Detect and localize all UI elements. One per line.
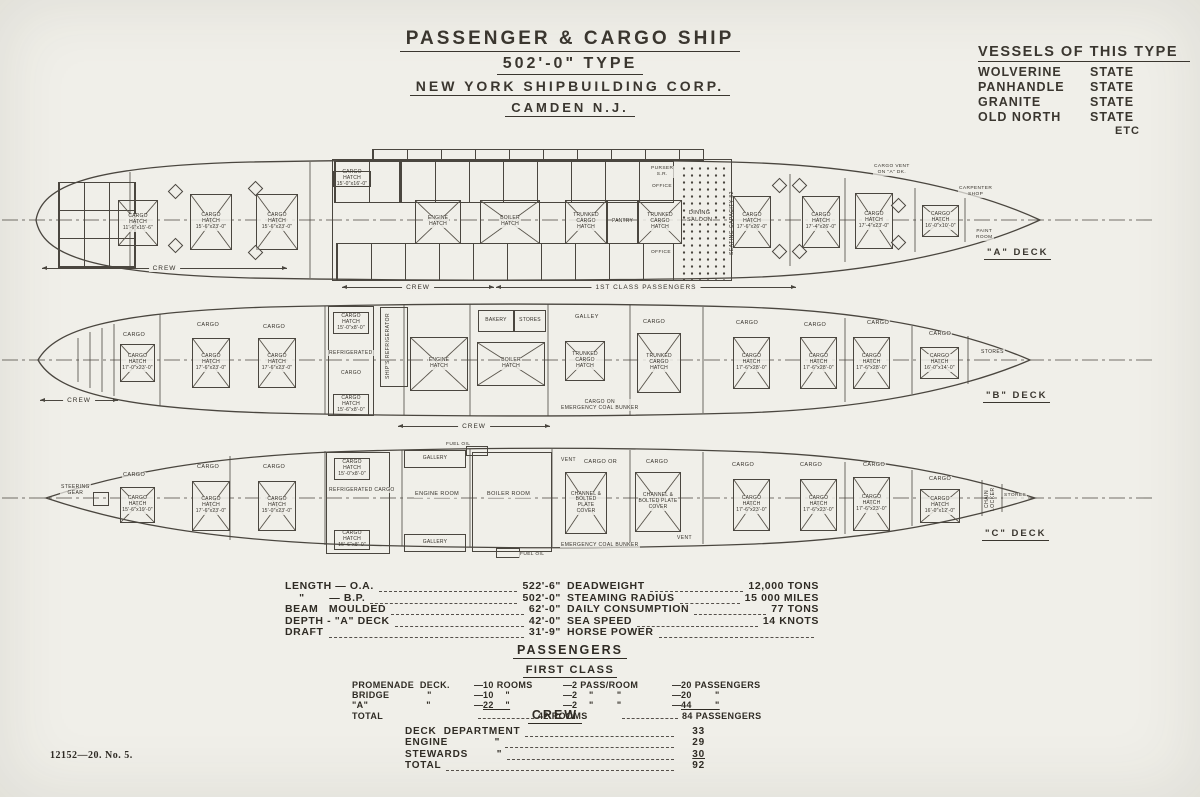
- hatch-label: CARGO HATCH 11'-6"x15'-6": [119, 214, 157, 231]
- spec-value: 42'-0": [529, 615, 561, 627]
- crew-leader: [525, 728, 674, 737]
- cargo-hatch: CARGO HATCH 17'-6"x23'-0": [258, 338, 296, 388]
- hatch-label: CARGO HATCH 17'-4"x26'-0": [803, 213, 839, 230]
- compartment-label: CARGO: [799, 462, 823, 469]
- cargo-hatch: ENGINE HATCH: [410, 337, 468, 391]
- hatch-label: CARGO HATCH 17'-6"x23'-0": [854, 495, 889, 512]
- cargo-hatch: CARGO HATCH 15'-6"x19'-0": [120, 487, 155, 523]
- dimension-line: CREW: [40, 400, 118, 401]
- compartment-label: CARGO: [196, 464, 220, 471]
- hatch-label: CARGO HATCH 16'-0"x12'-0": [921, 497, 959, 514]
- hatch-label: TRUNKED CARGO HATCH: [566, 213, 606, 230]
- compartment-room: STORES: [514, 310, 546, 332]
- dimension-line: CREW: [42, 268, 287, 269]
- passenger-row: PROMENADE DECK.—10 ROOMS—2 PASS/ROOM—20 …: [352, 680, 788, 690]
- cargo-hatch: TRUNKED CARGO HATCH: [565, 200, 607, 244]
- cargo-hatch: CARGO HATCH 17'-6"x23'-0": [192, 338, 230, 388]
- compartment-label: CARPENTER SHOP: [958, 186, 993, 198]
- hatch-label: CARGO HATCH 17'-6"x23'-0": [801, 496, 836, 513]
- hatch-label: TRUNKED CARGO HATCH: [638, 354, 680, 371]
- first-class-subtitle: FIRST CLASS: [523, 664, 618, 678]
- crew-rows: DECK DEPARTMENT33ENGINE "29STEWARDS "30T…: [405, 725, 705, 771]
- compartment-label: VENT: [676, 535, 693, 541]
- compartment-label: REFRIGERATED: [328, 350, 374, 356]
- deck-name-label: "A" DECK: [984, 247, 1051, 260]
- cargo-hatch: BOILER HATCH: [480, 200, 540, 244]
- compartment-label: CARGO: [928, 331, 952, 338]
- compartment-room: [93, 492, 109, 506]
- cargo-hatch: TRUNKED CARGO HATCH: [565, 341, 605, 381]
- spec-label: LENGTH — O.A.: [285, 580, 374, 592]
- cargo-hatch: CARGO HATCH 16'-0"x12'-0": [920, 489, 960, 523]
- compartment-label: BOILER ROOM: [486, 491, 531, 498]
- hatch-label: CARGO HATCH 17'-6"x23'-0": [259, 354, 295, 371]
- spec-value: 12,000 TONS: [748, 580, 819, 592]
- crew-row: ENGINE "29: [405, 737, 705, 749]
- crew-value: 29: [679, 737, 705, 748]
- compartment-label: CARGO VENT ON "A" DK.: [873, 164, 911, 176]
- hatch-label: ENGINE HATCH: [428, 358, 450, 370]
- spec-label: SEA SPEED: [567, 615, 632, 627]
- vertical-label: CHAIN LOCKER: [984, 478, 1000, 520]
- compartment-label: CARGO: [803, 322, 827, 329]
- cargo-hatch: CARGO HATCH 17'-6"x23'-0": [733, 479, 770, 531]
- room-label: GALLERY: [422, 540, 448, 546]
- passenger-deck: BRIDGE ": [352, 690, 474, 700]
- crew-leader: [505, 739, 674, 748]
- dimension-label: CREW: [402, 284, 434, 291]
- compartment-label: CARGO: [645, 459, 669, 466]
- cargo-hatch: BOILER HATCH: [477, 342, 545, 386]
- hatch-label: CARGO HATCH 17'-4"x23'-0": [856, 212, 892, 229]
- hatch-label: CARGO HATCH 17'-6"x26'-0": [734, 213, 770, 230]
- compartment-label: OFFICE: [650, 250, 672, 256]
- compartment-label: CARGO: [196, 322, 220, 329]
- hatch-label: CHANNEL & BOLTED PLATE COVER: [638, 493, 679, 510]
- compartment-room: CARGO HATCH 15'-0"x8'-0": [333, 312, 369, 334]
- spec-value: 31'-9": [529, 626, 561, 638]
- cargo-hatch: CARGO HATCH 16'-0"x14'-0": [920, 347, 959, 379]
- compartment-label: GALLEY: [574, 314, 600, 321]
- cargo-hatch: CARGO HATCH 15'-0"x23'-0": [258, 481, 296, 531]
- hatch-label: BOILER HATCH: [500, 358, 522, 370]
- spec-leader: [694, 606, 766, 615]
- spec-label: DRAFT: [285, 626, 324, 638]
- spec-row: DEADWEIGHT12,000 TONS: [567, 581, 819, 592]
- compartment-label: CARGO: [642, 319, 666, 326]
- compartment-room: CARGO HATCH 15'-0"x16'-0": [333, 171, 371, 187]
- compartment-label: CARGO: [866, 320, 890, 327]
- cargo-hatch: TRUNKED CARGO HATCH: [638, 200, 682, 244]
- room-label: CARGO HATCH 15'-0"x16'-0": [334, 170, 370, 187]
- compartment-label: PURSER S.R.: [650, 166, 674, 178]
- compartment-label: CARGO: [122, 332, 146, 339]
- crew-row: STEWARDS "30: [405, 748, 705, 760]
- dimension-label: CREW: [458, 423, 490, 430]
- room-label: CARGO HATCH 15'-6"x8'-0": [335, 531, 369, 548]
- passenger-rooms: 10 ROOMS: [483, 680, 563, 690]
- room-label: CARGO HATCH 15'-0"x8'-0": [334, 314, 368, 331]
- spec-value: 522'-6": [522, 580, 561, 592]
- compartment-room: GALLERY: [404, 450, 466, 468]
- compartment-room: [472, 452, 552, 552]
- hatch-label: CARGO HATCH 17'-6"x28'-0": [801, 354, 836, 371]
- spec-value: 14 KNOTS: [763, 615, 819, 627]
- hatch-label: BOILER HATCH: [499, 216, 521, 228]
- cargo-hatch: CARGO HATCH 17'-4"x26'-0": [802, 196, 840, 248]
- spec-leader: [637, 618, 758, 627]
- cargo-hatch: CARGO HATCH 15'-6"x23'-0": [190, 194, 232, 250]
- spec-value: 62'-0": [529, 603, 561, 615]
- cargo-hatch: CARGO HATCH 17'-4"x23'-0": [855, 193, 893, 249]
- hatch-label: CHANNEL & BOLTED PLATE COVER: [566, 492, 606, 515]
- spec-label: " — B.P.: [285, 592, 365, 604]
- cargo-hatch: CARGO HATCH 17'-6"x28'-0": [733, 337, 770, 389]
- spec-label: STEAMING RADIUS: [567, 592, 675, 604]
- spec-label: BEAM MOULDED: [285, 603, 386, 615]
- room-label: CARGO HATCH 15'-6"x8'-0": [334, 396, 368, 413]
- deck-name-label: "C" DECK: [982, 528, 1049, 541]
- dimension-line: CREW: [398, 426, 550, 427]
- spec-leader: [391, 606, 524, 615]
- spec-row: SEA SPEED14 KNOTS: [567, 615, 819, 626]
- compartment-label: DINING SALOON: [686, 210, 713, 223]
- crew-value: 33: [679, 726, 705, 737]
- hatch-label: CARGO HATCH 17'-0"x23'-0": [121, 354, 154, 371]
- hatch-label: CARGO HATCH 15'-6"x19'-0": [121, 496, 154, 513]
- crew-row: TOTAL92: [405, 760, 705, 772]
- cargo-hatch: CARGO HATCH 17'-6"x26'-0": [733, 196, 771, 248]
- hatch-label: CARGO HATCH 15'-6"x23'-0": [257, 213, 297, 230]
- room-label: GALLERY: [422, 456, 448, 462]
- crew-leader: [507, 751, 674, 760]
- dimension-label: CREW: [63, 397, 95, 404]
- passenger-count: 20 PASSENGERS: [681, 680, 787, 690]
- cargo-hatch: CARGO HATCH 17'-6"x28'-0": [800, 337, 837, 389]
- compartment-label: CARGO: [262, 324, 286, 331]
- crew-row: DECK DEPARTMENT33: [405, 725, 705, 737]
- hatch-label: CARGO HATCH 17'-6"x28'-0": [854, 354, 889, 371]
- crew-label: TOTAL: [405, 760, 441, 771]
- cargo-hatch: CARGO HATCH 17'-0"x23'-0": [120, 344, 155, 382]
- cargo-hatch: CARGO HATCH 11'-6"x15'-6": [118, 200, 158, 246]
- cargo-hatch: CARGO HATCH 17'-6"x28'-0": [853, 337, 890, 389]
- vertical-label: SHIP'S REFRIGERATOR: [385, 311, 401, 381]
- passenger-deck: PROMENADE DECK.: [352, 680, 474, 690]
- compartment-room: BAKERY: [478, 310, 514, 332]
- spec-row: HORSE POWER: [567, 627, 819, 638]
- dimension-label: 1ST CLASS PASSENGERS: [591, 284, 700, 291]
- room-label: PANTRY: [611, 219, 634, 225]
- passenger-count: 20 ": [681, 690, 787, 700]
- passengers-per-room: 2 " ": [572, 690, 672, 700]
- crew-title: CREW: [528, 708, 582, 724]
- crew-value: 92: [679, 760, 705, 771]
- room-label: BAKERY: [484, 318, 507, 324]
- passenger-row: BRIDGE "—10 "—2 " "—20 ": [352, 690, 788, 700]
- spec-row: DAILY CONSUMPTION77 TONS: [567, 604, 819, 615]
- cargo-hatch: CARGO HATCH 17'-6"x23'-0": [192, 481, 230, 531]
- crew-label: DECK DEPARTMENT: [405, 726, 520, 737]
- compartment-label: CARGO: [262, 464, 286, 471]
- crew-leader: [446, 762, 674, 771]
- print-number: 12152—20. No. 5.: [50, 750, 133, 761]
- hatch-label: CARGO HATCH 17'-6"x23'-0": [734, 496, 769, 513]
- hatch-label: CARGO HATCH 15'-0"x23'-0": [259, 497, 295, 514]
- cabin-row: [372, 149, 704, 161]
- dimension-line: CREW: [342, 287, 494, 288]
- compartment-label: CARGO OR: [583, 459, 618, 466]
- passenger-rooms: 10 ": [483, 690, 563, 700]
- cargo-hatch: ENGINE HATCH: [415, 200, 461, 244]
- cargo-hatch: CARGO HATCH 17'-6"x23'-0": [800, 479, 837, 531]
- compartment-label: FUEL OIL: [519, 552, 545, 558]
- compartment-label: OFFICE: [651, 184, 673, 190]
- cargo-hatch: TRUNKED CARGO HATCH: [637, 333, 681, 393]
- spec-value: 77 TONS: [771, 603, 819, 615]
- crew-value: 30: [679, 749, 705, 760]
- room-label: CARGO HATCH 15'-0"x8'-0": [335, 460, 369, 477]
- specs-table-right: DEADWEIGHT12,000 TONSSTEAMING RADIUS15 0…: [567, 581, 819, 638]
- compartment-room: CARGO HATCH 15'-6"x8'-0": [334, 530, 370, 550]
- compartment-room: CARGO HATCH 15'-6"x8'-0": [333, 394, 369, 416]
- spec-value: 502'-0": [522, 592, 561, 604]
- spec-row: " — B.P.502'-0": [285, 592, 561, 603]
- cargo-hatch: CHANNEL & BOLTED PLATE COVER: [565, 472, 607, 534]
- cargo-hatch: CHANNEL & BOLTED PLATE COVER: [635, 472, 681, 532]
- spec-value: 15 000 MILES: [745, 592, 819, 604]
- specs-table-left: LENGTH — O.A.522'-6" " — B.P.502'-0"BEAM…: [285, 581, 561, 638]
- hatch-label: TRUNKED CARGO HATCH: [639, 213, 681, 230]
- compartment-room: [496, 548, 520, 558]
- compartment-label: CARGO: [735, 320, 759, 327]
- hatch-label: CARGO HATCH 17'-6"x23'-0": [193, 497, 229, 514]
- spec-leader: [395, 618, 524, 627]
- compartment-label: STEERING GEAR: [60, 484, 91, 496]
- spec-row: STEAMING RADIUS15 000 MILES: [567, 592, 819, 603]
- compartment-label: REFRIGERATED CARGO: [328, 487, 396, 493]
- compartment-label: CARGO: [862, 462, 886, 469]
- passengers-title: PASSENGERS: [513, 643, 627, 659]
- compartment-label: EMERGENCY COAL BUNKER: [560, 542, 640, 548]
- dimension-line: 1ST CLASS PASSENGERS: [496, 287, 796, 288]
- compartment-label: ENGINE ROOM: [414, 491, 460, 498]
- spec-label: DAILY CONSUMPTION: [567, 603, 689, 615]
- deck-name-label: "B" DECK: [983, 390, 1050, 403]
- spec-leader: [370, 595, 517, 604]
- compartment-label: CARGO: [122, 472, 146, 479]
- compartment-room: GALLERY: [404, 534, 466, 552]
- cabin-row: [336, 243, 674, 281]
- dimension-label: CREW: [149, 265, 181, 272]
- spec-row: DEPTH - "A" DECK42'-0": [285, 615, 561, 626]
- cargo-hatch: CARGO HATCH 16'-0"x10'-0": [922, 205, 959, 237]
- compartment-room: PANTRY: [607, 200, 638, 244]
- compartment-label: CARGO: [928, 476, 952, 483]
- compartment-label: PAINT ROOM: [975, 229, 994, 241]
- compartment-room: CARGO HATCH 15'-0"x8'-0": [334, 458, 370, 480]
- hatch-label: TRUNKED CARGO HATCH: [566, 352, 604, 369]
- compartment-label: CARGO ON EMERGENCY COAL BUNKER: [560, 399, 640, 411]
- spec-leader: [379, 583, 518, 592]
- compartment-label: CARGO: [731, 462, 755, 469]
- spec-label: DEPTH - "A" DECK: [285, 615, 390, 627]
- hatch-label: CARGO HATCH 16'-0"x14'-0": [921, 354, 958, 371]
- spec-label: DEADWEIGHT: [567, 580, 645, 592]
- crew-table: CREW DECK DEPARTMENT33ENGINE "29STEWARDS…: [405, 706, 705, 771]
- hatch-label: CARGO HATCH 17'-6"x23'-0": [193, 354, 229, 371]
- compartment-label: STORES: [1003, 493, 1027, 499]
- hatch-label: ENGINE HATCH: [427, 216, 449, 228]
- spec-row: DRAFT31'-9": [285, 627, 561, 638]
- cargo-hatch: CARGO HATCH 15'-6"x23'-0": [256, 194, 298, 250]
- compartment-label: STORES: [980, 349, 1005, 355]
- hatch-label: CARGO HATCH 17'-6"x28'-0": [734, 354, 769, 371]
- spec-leader: [659, 629, 814, 638]
- crew-label: STEWARDS ": [405, 749, 502, 760]
- compartment-label: CARGO: [340, 370, 362, 376]
- hatch-label: CARGO HATCH 15'-6"x23'-0": [191, 213, 231, 230]
- passengers-per-room: 2 PASS/ROOM: [572, 680, 672, 690]
- cabin-row: [400, 161, 674, 203]
- spec-row: LENGTH — O.A.522'-6": [285, 581, 561, 592]
- spec-label: HORSE POWER: [567, 626, 654, 638]
- hatch-label: CARGO HATCH 16'-0"x10'-0": [923, 212, 958, 229]
- room-label: STORES: [518, 318, 542, 324]
- crew-label: ENGINE ": [405, 737, 500, 748]
- spec-row: BEAM MOULDED62'-0": [285, 604, 561, 615]
- compartment-label: VENT: [560, 457, 577, 463]
- spec-leader: [329, 629, 524, 638]
- cargo-hatch: CARGO HATCH 17'-6"x23'-0": [853, 477, 890, 531]
